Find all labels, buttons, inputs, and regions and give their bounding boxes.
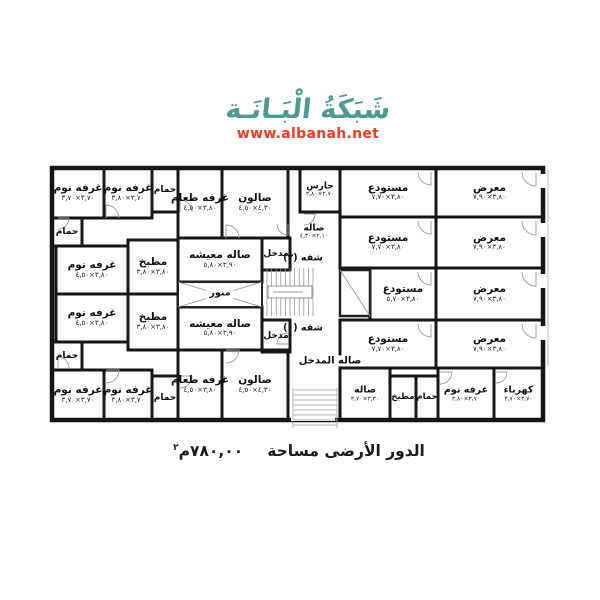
floor-plan-page: غرفه نوم٣,٧٠×٣,٧٠غرفه نوم٣,٧٠×٣,٨٠حمامغر… xyxy=(0,0,600,600)
room-dims-storage-1: ٣,٨٠×٧,٧٠ xyxy=(368,194,409,202)
room-dims-storage-4: ٣,٨٠×٧,٧٠ xyxy=(368,346,409,354)
label-bedroom-top-1: غرفه نوم٣,٧٠×٣,٧٠ xyxy=(54,183,103,203)
room-dims-bedroom-top-2: ٣,٧٠×٣,٨٠ xyxy=(104,195,153,203)
caption-area-value: ٧٨٠,٠٠م xyxy=(179,442,244,460)
room-name-bath-br: حمام xyxy=(416,393,437,403)
room-dims-bedroom-bot-1: ٣,٧٠×٣,٧٠ xyxy=(54,397,103,405)
label-hall-middle: صاله٢,١٠×٤,٣٠ xyxy=(300,224,328,241)
room-dims-showroom-4: ٣,٨٠×٧,٩٠ xyxy=(473,346,506,354)
watermark: شَبَكَةُ الْبَـانَـة www.albanah.net xyxy=(226,94,391,142)
room-dims-bedroom-bot-3: ٣,٨٠×٤,٥٠ xyxy=(68,320,117,328)
room-dims-showroom-3: ٣,٨٠×٧,٩٠ xyxy=(473,296,506,304)
label-electricity-room: كهرباء٣,٧٠×٣,٧٠ xyxy=(504,385,534,402)
room-name-showroom-1: معرض xyxy=(473,183,506,195)
room-name-storage-3: مستودع xyxy=(383,284,424,296)
label-showroom-2: معرض٣,٨٠×٧,٩٠ xyxy=(473,233,506,253)
label-showroom-3: معرض٣,٨٠×٧,٩٠ xyxy=(473,284,506,304)
room-name-bedroom-bot-2: غرفه نوم xyxy=(104,385,153,397)
room-dims-living-bottom: ٣,٩٠×٥,٨٠ xyxy=(189,330,251,338)
room-dims-bedroom-bot-2: ٣,٧٠×٣,٨٠ xyxy=(104,397,153,405)
label-bedroom-br: غرفه نوم٣,٧٠×٣,٨٠ xyxy=(444,385,488,402)
room-name-lightwell: منور xyxy=(209,289,230,300)
label-showroom-4: معرض٣,٨٠×٧,٩٠ xyxy=(473,334,506,354)
label-bedroom-top-3: غرفه نوم٣,٨٠×٤,٥٠ xyxy=(68,260,117,280)
label-bath-bot-2: حمام xyxy=(56,351,79,361)
room-name-dining-bottom: غرفه طعام xyxy=(171,375,229,387)
room-name-bedroom-top-3: غرفه نوم xyxy=(68,260,117,272)
room-name-living-top: صاله معيشه xyxy=(189,250,251,262)
label-kitchen-bottom: مطبخ٣,٨٠×٣,٨٠ xyxy=(137,312,170,332)
label-entrance-hall: صاله المدخل xyxy=(296,355,365,366)
room-name-kitchen-bottom: مطبخ xyxy=(137,312,170,324)
label-storage-2: مستودع٣,٨٠×٧,٧٠ xyxy=(368,233,409,253)
room-name-bath-top-2: حمام xyxy=(56,227,79,237)
room-name-salon-top: صالون xyxy=(238,193,272,205)
label-guard-room: حارس٢,٧٠×٣,٨٠ xyxy=(306,182,334,199)
room-name-kitchen-top: مطبخ xyxy=(137,257,170,269)
floor-caption: الدور الأرضى مساحة٧٨٠,٠٠م٢ xyxy=(173,442,425,460)
room-name-showroom-3: معرض xyxy=(473,284,506,296)
label-showroom-1: معرض٣,٨٠×٧,٩٠ xyxy=(473,183,506,203)
label-living-bottom: صاله معيشه٣,٩٠×٥,٨٠ xyxy=(189,319,251,339)
room-name-entrance-hall: صاله المدخل xyxy=(299,355,362,366)
room-name-salon-bottom: صالون xyxy=(238,375,272,387)
room-name-dining-top: غرفه طعام xyxy=(171,193,229,205)
room-dims-storage-3: ٣,٨٠×٥,٧٠ xyxy=(383,296,424,304)
room-name-kitchen-br: مطبخ xyxy=(391,393,414,403)
label-lightwell: منور xyxy=(206,289,233,300)
albanah-url: www.albanah.net xyxy=(226,126,391,142)
label-dining-bottom: غرفه طعام٣,٨٠×٤,٥٠ xyxy=(171,375,229,395)
room-dims-hall-middle: ٢,١٠×٤,٣٠ xyxy=(300,234,328,241)
label-dining-top: غرفه طعام٣,٨٠×٤,٥٠ xyxy=(171,193,229,213)
room-name-storage-2: مستودع xyxy=(368,233,409,245)
room-dims-living-top: ٣,٩٠×٥,٨٠ xyxy=(189,262,251,270)
room-dims-showroom-1: ٣,٨٠×٧,٩٠ xyxy=(473,194,506,202)
room-name-storage-1: مستودع xyxy=(368,183,409,195)
room-dims-salon-top: ٤,٣٠×٤,٥٠ xyxy=(238,205,272,213)
caption-title: الدور الأرضى مساحة xyxy=(267,442,425,460)
room-name-bedroom-bot-3: غرفه نوم xyxy=(68,308,117,320)
room-dims-guard-room: ٢,٧٠×٣,٨٠ xyxy=(306,192,334,199)
room-name-bath-bot-2: حمام xyxy=(56,351,79,361)
room-name-apartment-1: شقه (١) xyxy=(283,324,323,335)
room-name-bedroom-top-1: غرفه نوم xyxy=(54,183,103,195)
label-storage-3: مستودع٣,٨٠×٥,٧٠ xyxy=(383,284,424,304)
label-living-top: صاله معيشه٣,٩٠×٥,٨٠ xyxy=(189,250,251,270)
room-name-bedroom-bot-1: غرفه نوم xyxy=(54,385,103,397)
label-hall-bottom-right: صاله٣,٣٠×٣,٧٠ xyxy=(351,385,379,402)
room-labels-layer: غرفه نوم٣,٧٠×٣,٧٠غرفه نوم٣,٧٠×٣,٨٠حمامغر… xyxy=(0,0,600,600)
room-name-storage-4: مستودع xyxy=(368,334,409,346)
room-dims-bedroom-top-1: ٣,٧٠×٣,٧٠ xyxy=(54,195,103,203)
label-salon-top: صالون٤,٣٠×٤,٥٠ xyxy=(238,193,272,213)
room-dims-salon-bottom: ٤,٣٠×٤,٥٠ xyxy=(238,387,272,395)
label-bedroom-bot-2: غرفه نوم٣,٧٠×٣,٨٠ xyxy=(104,385,153,405)
room-dims-hall-bottom-right: ٣,٣٠×٣,٧٠ xyxy=(351,396,379,403)
room-dims-bedroom-br: ٣,٧٠×٣,٨٠ xyxy=(444,396,488,403)
room-name-living-bottom: صاله معيشه xyxy=(189,319,251,331)
room-name-showroom-4: معرض xyxy=(473,334,506,346)
albanah-logo-text: شَبَكَةُ الْبَـانَـة xyxy=(224,94,392,125)
label-bedroom-bot-3: غرفه نوم٣,٨٠×٤,٥٠ xyxy=(68,308,117,328)
room-dims-showroom-2: ٣,٨٠×٧,٩٠ xyxy=(473,244,506,252)
label-kitchen-br: مطبخ xyxy=(391,393,414,403)
label-apartment-1: شقه (١) xyxy=(283,324,323,335)
label-salon-bottom: صالون٤,٣٠×٤,٥٠ xyxy=(238,375,272,395)
label-storage-4: مستودع٣,٨٠×٧,٧٠ xyxy=(368,334,409,354)
room-name-apartment-2: شقه (٢) xyxy=(283,254,323,265)
label-bath-top-2: حمام xyxy=(56,227,79,237)
room-dims-dining-top: ٣,٨٠×٤,٥٠ xyxy=(171,205,229,213)
room-dims-storage-2: ٣,٨٠×٧,٧٠ xyxy=(368,244,409,252)
room-dims-kitchen-top: ٣,٨٠×٣,٨٠ xyxy=(137,269,170,277)
room-dims-dining-bottom: ٣,٨٠×٤,٥٠ xyxy=(171,387,229,395)
label-bedroom-bot-1: غرفه نوم٣,٧٠×٣,٧٠ xyxy=(54,385,103,405)
room-dims-bedroom-top-3: ٣,٨٠×٤,٥٠ xyxy=(68,272,117,280)
label-apartment-2: شقه (٢) xyxy=(283,254,323,265)
label-kitchen-top: مطبخ٣,٨٠×٣,٨٠ xyxy=(137,257,170,277)
room-dims-kitchen-bottom: ٣,٨٠×٣,٨٠ xyxy=(137,324,170,332)
label-storage-1: مستودع٣,٨٠×٧,٧٠ xyxy=(368,183,409,203)
room-name-showroom-2: معرض xyxy=(473,233,506,245)
room-dims-electricity-room: ٣,٧٠×٣,٧٠ xyxy=(504,396,534,403)
label-bedroom-top-2: غرفه نوم٣,٧٠×٣,٨٠ xyxy=(104,183,153,203)
room-name-bedroom-top-2: غرفه نوم xyxy=(104,183,153,195)
label-bath-br: حمام xyxy=(416,393,437,403)
